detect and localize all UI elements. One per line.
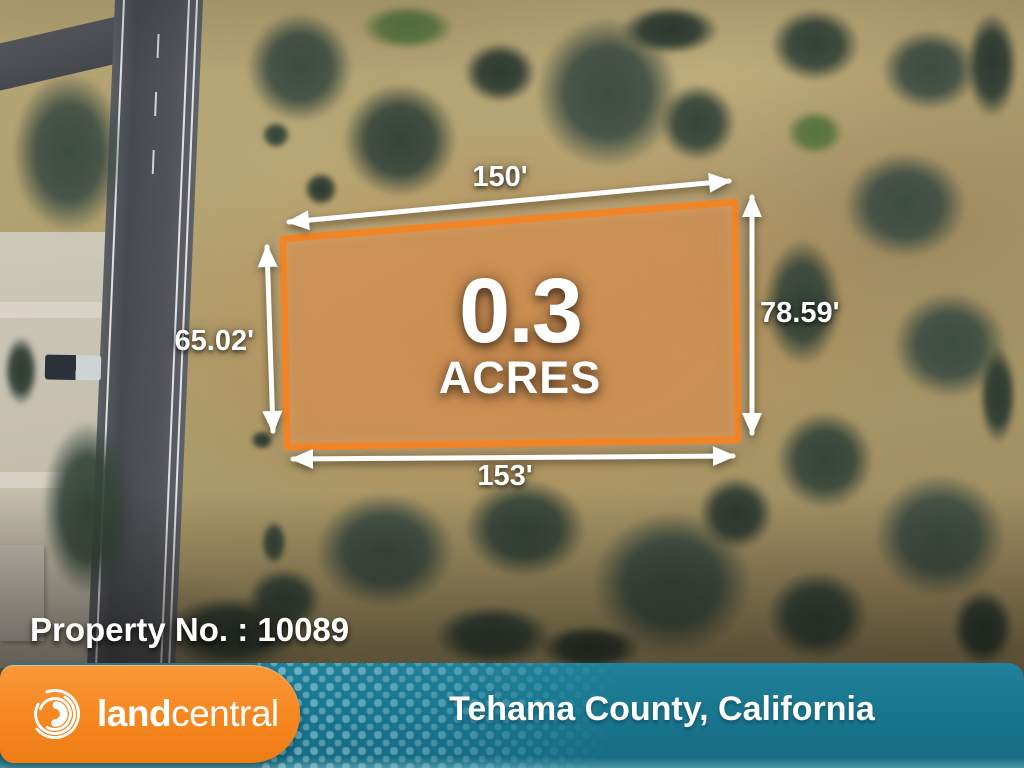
dimension-arrow-bottom [293,456,733,459]
brand-name-central: central [171,693,279,734]
county-state-label: Tehama County, California [300,663,1024,755]
brand-name: landcentral [97,693,279,735]
brand-name-land: land [97,693,171,734]
dimension-arrow-left [267,247,273,431]
swirl-logo-icon [26,685,84,743]
landcentral-logo: landcentral [0,665,300,763]
property-number: Property No. : 10089 [30,611,349,649]
dimension-label-bottom: 153' [453,460,557,493]
dimension-label-top: 150' [450,161,550,194]
footer-bar: Tehama County, California landcentral [0,663,1024,768]
dimension-label-left: 65.02' [150,325,254,358]
dimension-label-right: 78.59' [760,297,839,330]
property-flyer: 150' 65.02' 78.59' 153' 0.3 ACRES Proper… [0,0,1024,768]
acreage-value: 0.3 [395,272,645,350]
acreage-unit: ACRES [395,352,645,404]
acreage-label: 0.3 ACRES [395,272,645,404]
